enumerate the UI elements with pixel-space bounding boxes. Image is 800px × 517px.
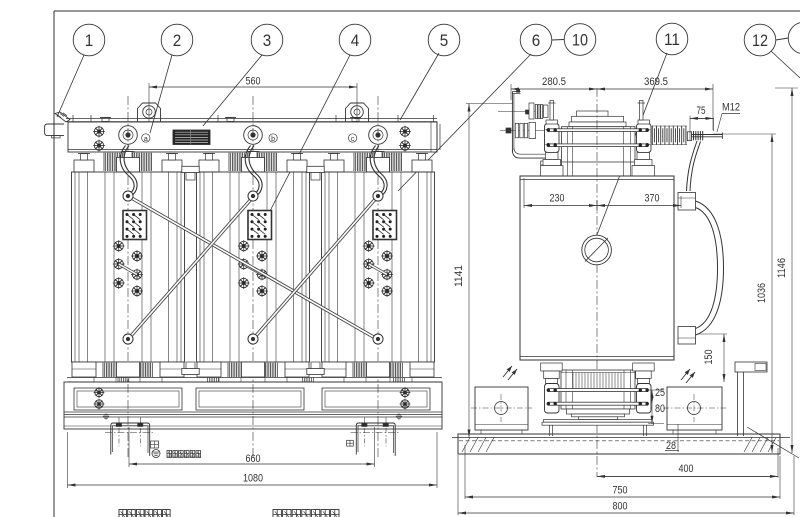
svg-text:3: 3 bbox=[263, 32, 272, 50]
svg-text:660: 660 bbox=[246, 453, 261, 465]
svg-text:M12: M12 bbox=[722, 102, 740, 114]
svg-text:25: 25 bbox=[655, 387, 665, 399]
svg-text:150: 150 bbox=[703, 350, 715, 365]
svg-text:1: 1 bbox=[85, 32, 94, 50]
svg-text:800: 800 bbox=[613, 501, 628, 513]
svg-text:370: 370 bbox=[645, 193, 660, 205]
svg-text:1141: 1141 bbox=[453, 265, 465, 287]
svg-text:560: 560 bbox=[246, 76, 261, 88]
svg-text:80: 80 bbox=[655, 403, 665, 415]
svg-text:1146: 1146 bbox=[776, 258, 788, 278]
svg-text:b: b bbox=[271, 136, 275, 143]
svg-text:75: 75 bbox=[697, 105, 706, 117]
svg-text:6: 6 bbox=[532, 32, 541, 50]
svg-text:1080: 1080 bbox=[243, 473, 263, 485]
svg-text:230: 230 bbox=[550, 193, 565, 205]
svg-text:2: 2 bbox=[173, 32, 182, 50]
svg-text:280.5: 280.5 bbox=[542, 76, 566, 88]
svg-text:750: 750 bbox=[613, 485, 628, 497]
svg-text:5: 5 bbox=[440, 32, 449, 50]
svg-text:11: 11 bbox=[664, 31, 680, 49]
svg-text:400: 400 bbox=[679, 463, 694, 475]
svg-text:4: 4 bbox=[351, 32, 360, 50]
svg-text:369.5: 369.5 bbox=[644, 76, 668, 88]
svg-text:c: c bbox=[351, 136, 355, 143]
svg-text:1036: 1036 bbox=[756, 283, 768, 303]
svg-text:12: 12 bbox=[752, 32, 768, 50]
svg-text:a: a bbox=[144, 136, 148, 143]
svg-text:10: 10 bbox=[572, 32, 588, 50]
